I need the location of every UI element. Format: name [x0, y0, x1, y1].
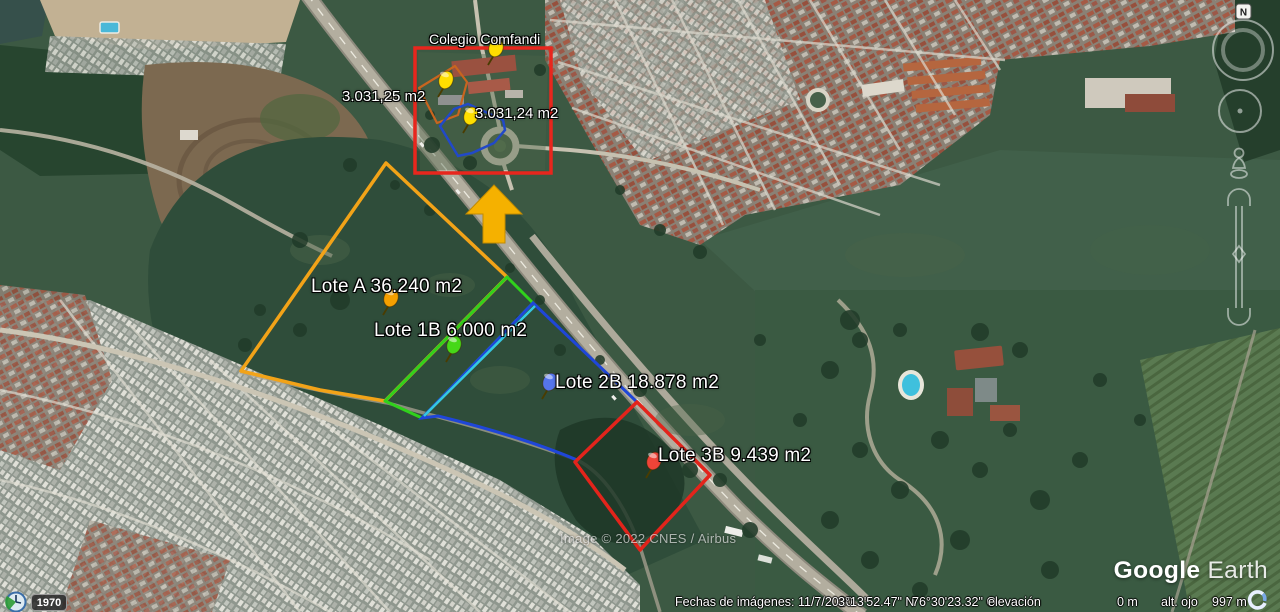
imagery-copyright-watermark: Image © 2022 CNES / Airbus [560, 531, 736, 546]
google-earth-viewport[interactable]: N Colegio Comfandi 3.031,25 m2 3.031,24 … [0, 0, 1280, 612]
lote-a-label[interactable]: Lote A 36.240 m2 [311, 276, 462, 298]
logo-google: Google [1114, 557, 1201, 584]
imagery-date-text: Fechas de imágenes: 11/7/2020 [675, 595, 853, 609]
parcel-3031-25-label[interactable]: 3.031,25 m2 [342, 88, 425, 105]
parcel-3031-24-label[interactable]: 3.031,24 m2 [475, 105, 558, 122]
colegio-placemark-label[interactable]: Colegio Comfandi [429, 31, 540, 47]
lote-3b-label[interactable]: Lote 3B 9.439 m2 [658, 445, 811, 467]
longitude-text: 76°30'23.32" O [912, 595, 996, 609]
satellite-imagery[interactable]: N [0, 0, 1280, 612]
imagery-year-badge: 1970 [31, 594, 67, 611]
logo-earth: Earth [1207, 557, 1268, 584]
lote-2b-label[interactable]: Lote 2B 18.878 m2 [555, 372, 719, 394]
historical-imagery-clock-icon[interactable] [5, 593, 25, 612]
google-earth-logo: GoogleEarth [1114, 557, 1268, 585]
eye-altitude-label: alt. ojo [1161, 595, 1198, 609]
latitude-text: 3°13'52.47" N [838, 595, 914, 609]
lote-1b-label[interactable]: Lote 1B 6.000 m2 [374, 320, 527, 342]
elevation-value: 0 m [1117, 595, 1138, 609]
north-button-label: N [1240, 8, 1247, 19]
elevation-label: elevación [988, 595, 1041, 609]
eye-altitude-value: 997 m [1212, 595, 1247, 609]
